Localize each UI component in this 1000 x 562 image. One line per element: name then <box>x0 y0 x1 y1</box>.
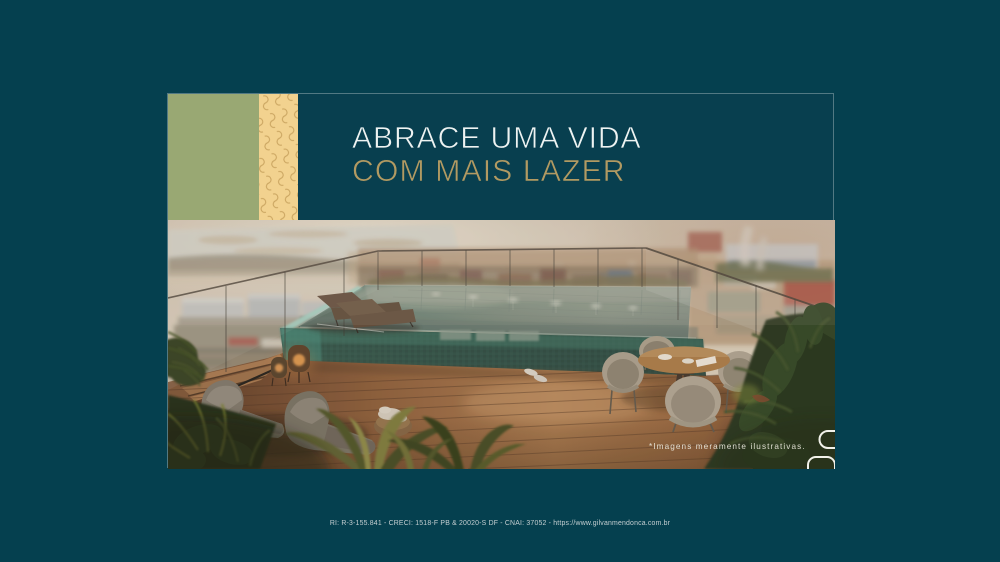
svg-text:*Imagens meramente ilustrativa: *Imagens meramente ilustrativas. <box>649 442 806 451</box>
